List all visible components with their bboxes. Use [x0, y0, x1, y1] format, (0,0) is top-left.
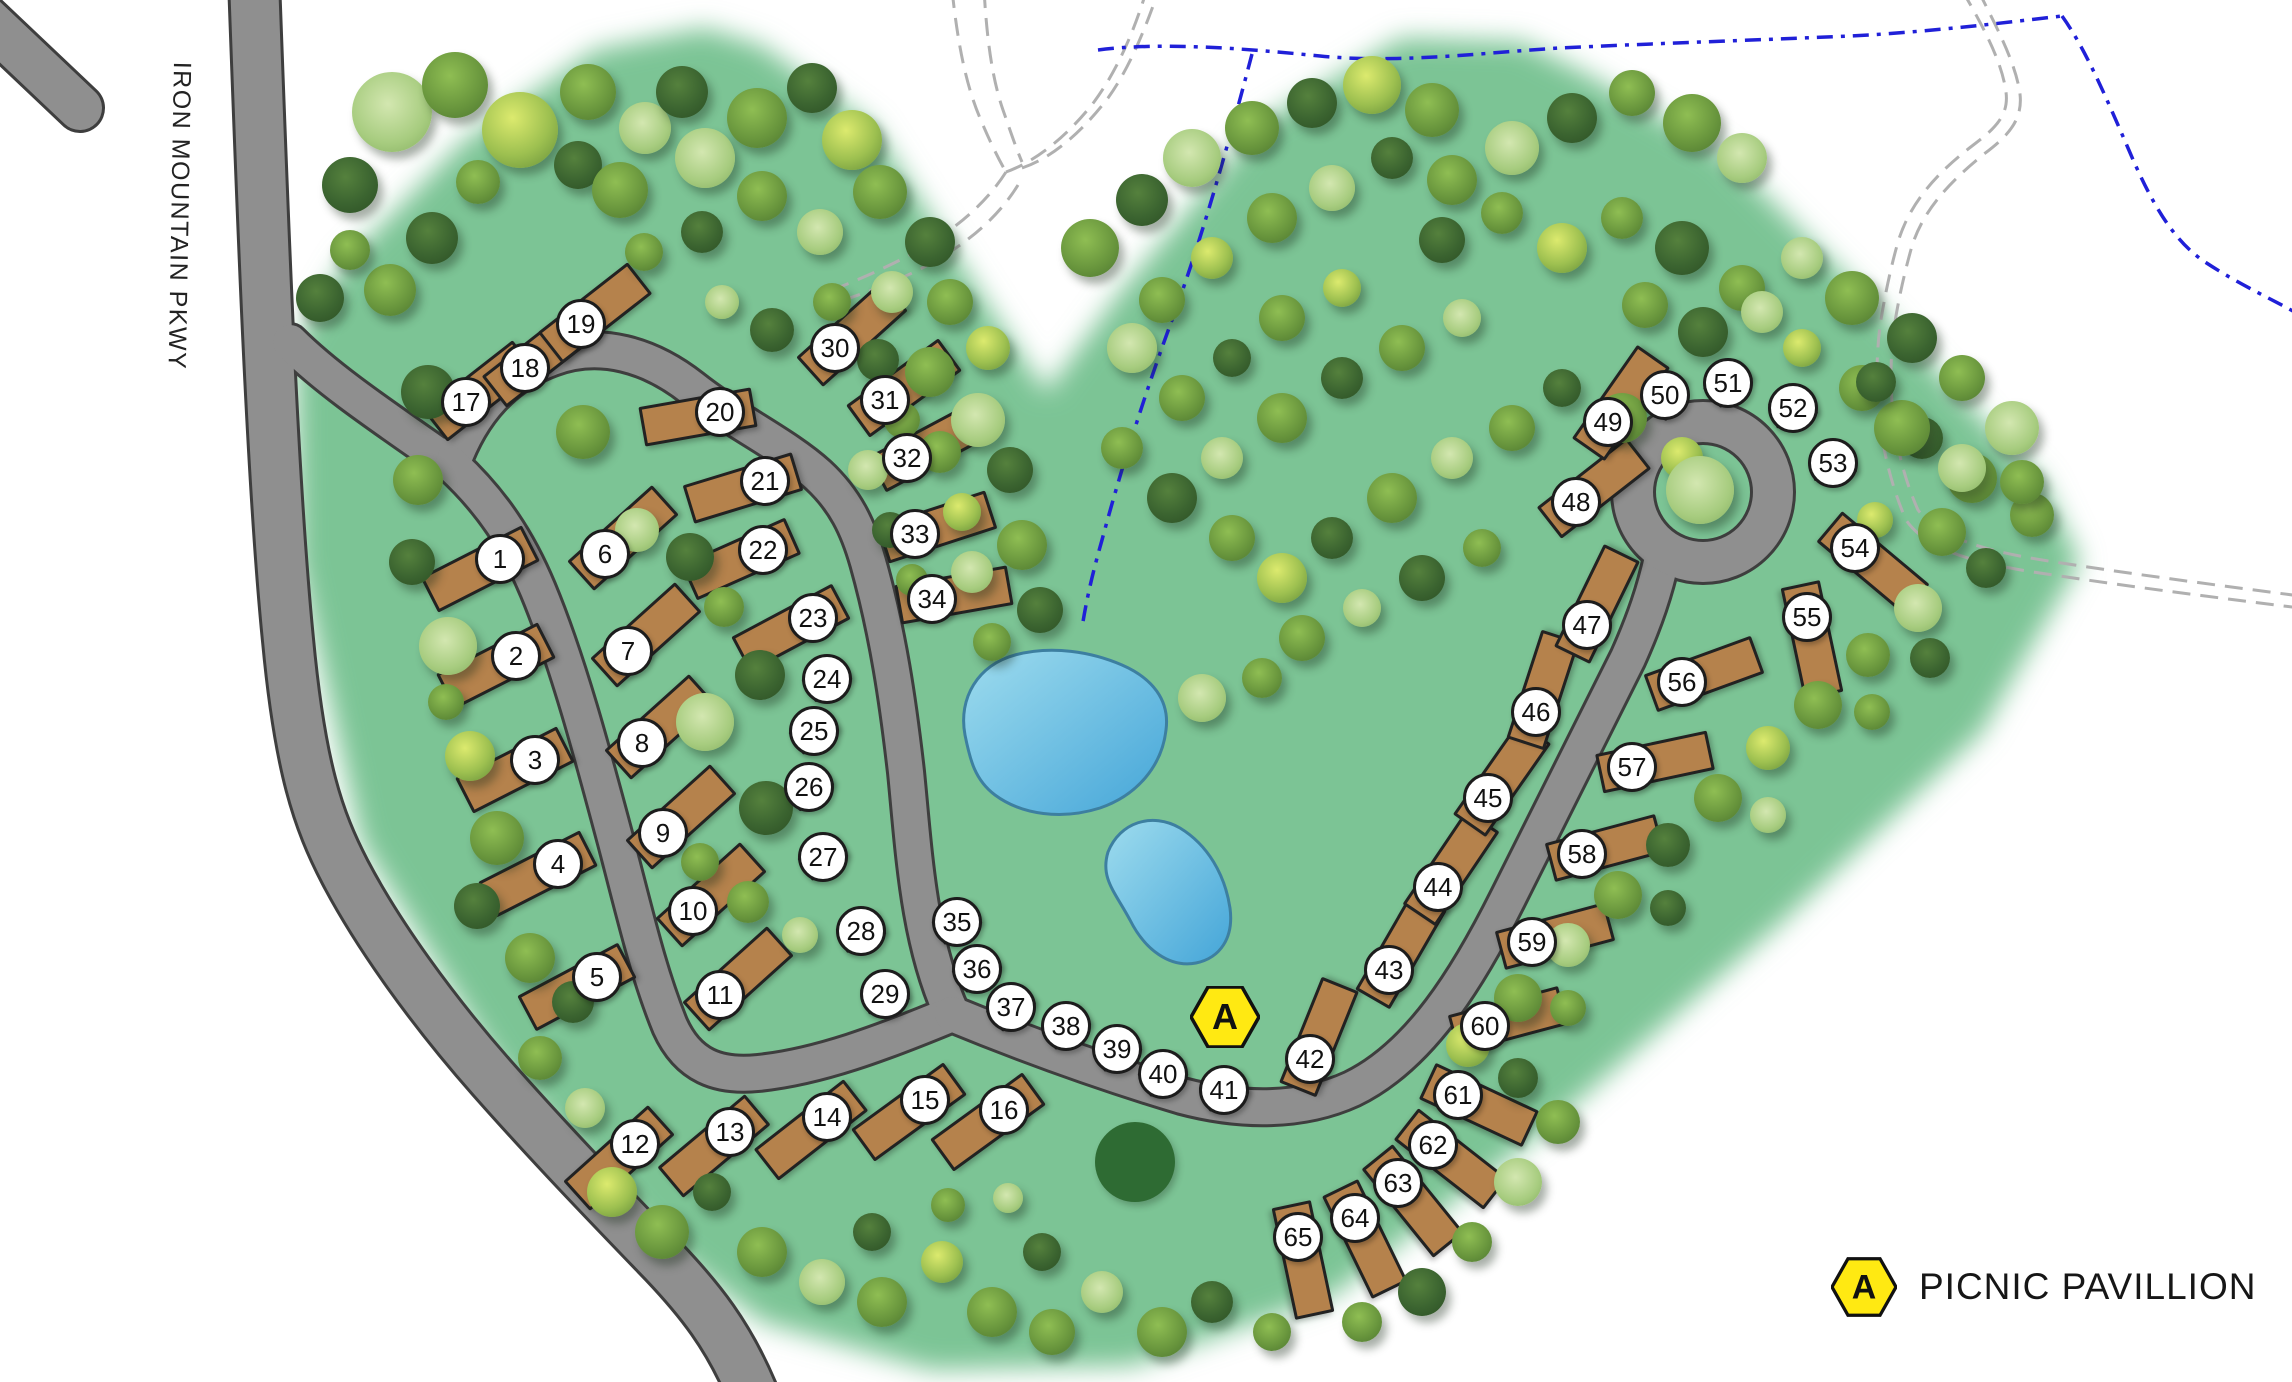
site-label-60: 60	[1460, 1001, 1510, 1051]
site-label-30: 30	[810, 323, 860, 373]
site-label-9: 9	[638, 808, 688, 858]
site-label-54: 54	[1830, 523, 1880, 573]
site-label-25: 25	[789, 706, 839, 756]
site-label-3: 3	[510, 735, 560, 785]
site-label-32: 32	[882, 433, 932, 483]
legend-label: PICNIC PAVILLION	[1919, 1266, 2256, 1308]
site-label-8: 8	[617, 718, 667, 768]
site-label-61: 61	[1433, 1070, 1483, 1120]
site-label-22: 22	[738, 525, 788, 575]
site-label-44: 44	[1413, 862, 1463, 912]
site-label-35: 35	[932, 897, 982, 947]
site-label-26: 26	[784, 762, 834, 812]
site-label-33: 33	[890, 509, 940, 559]
site-label-64: 64	[1330, 1193, 1380, 1243]
site-label-58: 58	[1557, 829, 1607, 879]
legend: A PICNIC PAVILLION	[1831, 1257, 2256, 1317]
site-label-37: 37	[986, 982, 1036, 1032]
site-label-63: 63	[1373, 1158, 1423, 1208]
site-label-27: 27	[798, 832, 848, 882]
site-label-13: 13	[705, 1107, 755, 1157]
site-label-45: 45	[1463, 773, 1513, 823]
pavilion-marker-letter: A	[1212, 996, 1238, 1037]
site-label-53: 53	[1808, 438, 1858, 488]
site-label-47: 47	[1562, 600, 1612, 650]
site-label-16: 16	[979, 1085, 1029, 1135]
site-label-46: 46	[1511, 687, 1561, 737]
site-label-34: 34	[907, 574, 957, 624]
site-label-40: 40	[1138, 1049, 1188, 1099]
site-label-17: 17	[441, 377, 491, 427]
site-label-5: 5	[572, 952, 622, 1002]
legend-pavilion-icon: A	[1831, 1257, 1897, 1317]
site-label-1: 1	[475, 534, 525, 584]
site-label-19: 19	[556, 299, 606, 349]
site-label-14: 14	[802, 1092, 852, 1142]
site-label-52: 52	[1768, 383, 1818, 433]
site-label-62: 62	[1408, 1120, 1458, 1170]
site-label-38: 38	[1041, 1001, 1091, 1051]
site-label-49: 49	[1583, 397, 1633, 447]
road-label: IRON MOUNTAIN PKWY	[162, 61, 196, 370]
site-label-56: 56	[1657, 657, 1707, 707]
site-label-2: 2	[491, 631, 541, 681]
legend-marker-letter: A	[1852, 1268, 1877, 1306]
picnic-pavilion-marker: A	[1190, 986, 1260, 1048]
site-label-48: 48	[1551, 477, 1601, 527]
site-label-15: 15	[900, 1075, 950, 1125]
site-label-42: 42	[1285, 1034, 1335, 1084]
site-label-41: 41	[1199, 1065, 1249, 1115]
site-label-43: 43	[1364, 945, 1414, 995]
site-label-59: 59	[1507, 917, 1557, 967]
site-label-21: 21	[740, 456, 790, 506]
site-label-4: 4	[533, 839, 583, 889]
campground-site-map: 1234567891011121314151617181920212223242…	[0, 0, 2292, 1382]
site-label-10: 10	[668, 886, 718, 936]
site-label-65: 65	[1273, 1212, 1323, 1262]
site-label-24: 24	[802, 654, 852, 704]
site-labels-layer: 1234567891011121314151617181920212223242…	[0, 0, 2292, 1382]
site-label-7: 7	[603, 626, 653, 676]
site-label-50: 50	[1640, 370, 1690, 420]
site-label-6: 6	[580, 529, 630, 579]
site-label-51: 51	[1703, 358, 1753, 408]
site-label-12: 12	[610, 1119, 660, 1169]
site-label-55: 55	[1782, 592, 1832, 642]
site-label-29: 29	[860, 969, 910, 1019]
site-label-11: 11	[695, 970, 745, 1020]
site-label-31: 31	[860, 375, 910, 425]
site-label-20: 20	[695, 387, 745, 437]
site-label-57: 57	[1607, 742, 1657, 792]
site-label-39: 39	[1092, 1024, 1142, 1074]
site-label-23: 23	[788, 593, 838, 643]
site-label-18: 18	[500, 343, 550, 393]
site-label-28: 28	[836, 906, 886, 956]
